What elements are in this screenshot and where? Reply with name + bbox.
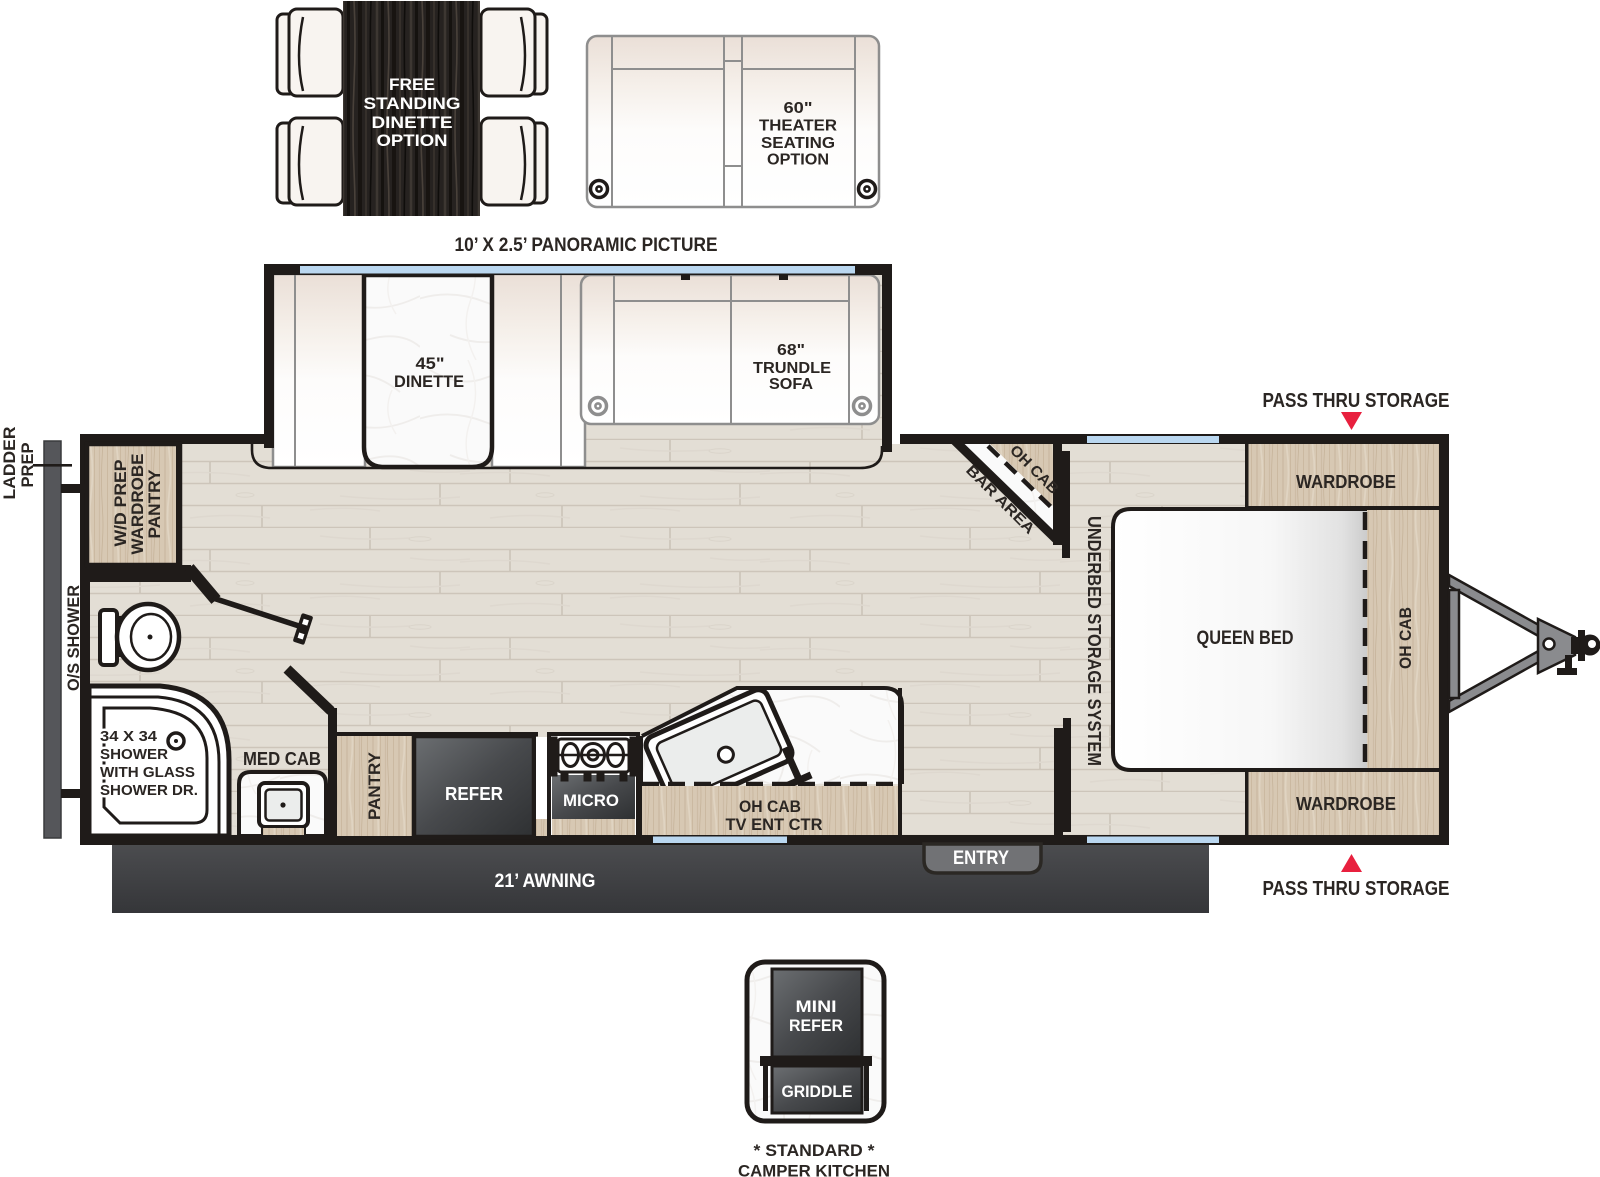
svg-text:OH CAB: OH CAB bbox=[739, 797, 801, 816]
svg-text:MICRO: MICRO bbox=[563, 791, 619, 810]
svg-text:FREE: FREE bbox=[389, 75, 435, 94]
svg-text:MINI: MINI bbox=[796, 997, 837, 1016]
svg-text:SEATING: SEATING bbox=[761, 135, 835, 152]
svg-text:WITH GLASS: WITH GLASS bbox=[100, 765, 195, 781]
svg-text:MED CAB: MED CAB bbox=[243, 749, 321, 769]
svg-text:PANTRY: PANTRY bbox=[145, 469, 164, 539]
svg-text:60": 60" bbox=[784, 100, 813, 117]
svg-text:O/S SHOWER: O/S SHOWER bbox=[64, 585, 83, 691]
svg-text:SOFA: SOFA bbox=[769, 376, 813, 393]
svg-text:PANTRY: PANTRY bbox=[365, 751, 384, 820]
svg-text:OPTION: OPTION bbox=[767, 152, 829, 169]
svg-text:OPTION: OPTION bbox=[377, 131, 448, 150]
svg-text:TV ENT CTR: TV ENT CTR bbox=[726, 815, 823, 834]
svg-text:45": 45" bbox=[416, 354, 445, 373]
svg-text:21’ AWNING: 21’ AWNING bbox=[495, 871, 596, 892]
svg-text:WARDROBE: WARDROBE bbox=[1296, 471, 1396, 492]
svg-text:STANDING: STANDING bbox=[364, 94, 461, 113]
svg-text:PASS THRU STORAGE: PASS THRU STORAGE bbox=[1263, 878, 1450, 900]
svg-text:ENTRY: ENTRY bbox=[953, 848, 1009, 869]
svg-text:68": 68" bbox=[777, 342, 805, 359]
svg-text:REFER: REFER bbox=[789, 1016, 843, 1035]
svg-text:* STANDARD *: * STANDARD * bbox=[754, 1142, 876, 1160]
svg-text:WARDROBE: WARDROBE bbox=[1296, 793, 1396, 814]
svg-text:SHOWER: SHOWER bbox=[100, 747, 169, 763]
svg-text:DINETTE: DINETTE bbox=[394, 372, 464, 391]
svg-text:QUEEN BED: QUEEN BED bbox=[1197, 628, 1294, 649]
svg-text:THEATER: THEATER bbox=[759, 118, 837, 135]
svg-text:CAMPER KITCHEN: CAMPER KITCHEN bbox=[738, 1163, 890, 1177]
svg-text:PASS THRU STORAGE: PASS THRU STORAGE bbox=[1263, 390, 1450, 412]
svg-text:SHOWER DR.: SHOWER DR. bbox=[100, 783, 198, 799]
svg-text:GRIDDLE: GRIDDLE bbox=[782, 1082, 853, 1101]
svg-text:TRUNDLE: TRUNDLE bbox=[753, 360, 831, 377]
svg-text:REFER: REFER bbox=[445, 784, 503, 804]
svg-text:LADDER: LADDER bbox=[0, 427, 19, 500]
svg-text:34 X 34: 34 X 34 bbox=[100, 729, 157, 745]
svg-text:10’ X 2.5’ PANORAMIC PICTURE: 10’ X 2.5’ PANORAMIC PICTURE bbox=[455, 234, 718, 256]
svg-text:DINETTE: DINETTE bbox=[372, 113, 453, 132]
svg-text:OH CAB: OH CAB bbox=[1396, 607, 1415, 669]
svg-text:UNDERBED STORAGE SYSTEM: UNDERBED STORAGE SYSTEM bbox=[1084, 516, 1104, 766]
